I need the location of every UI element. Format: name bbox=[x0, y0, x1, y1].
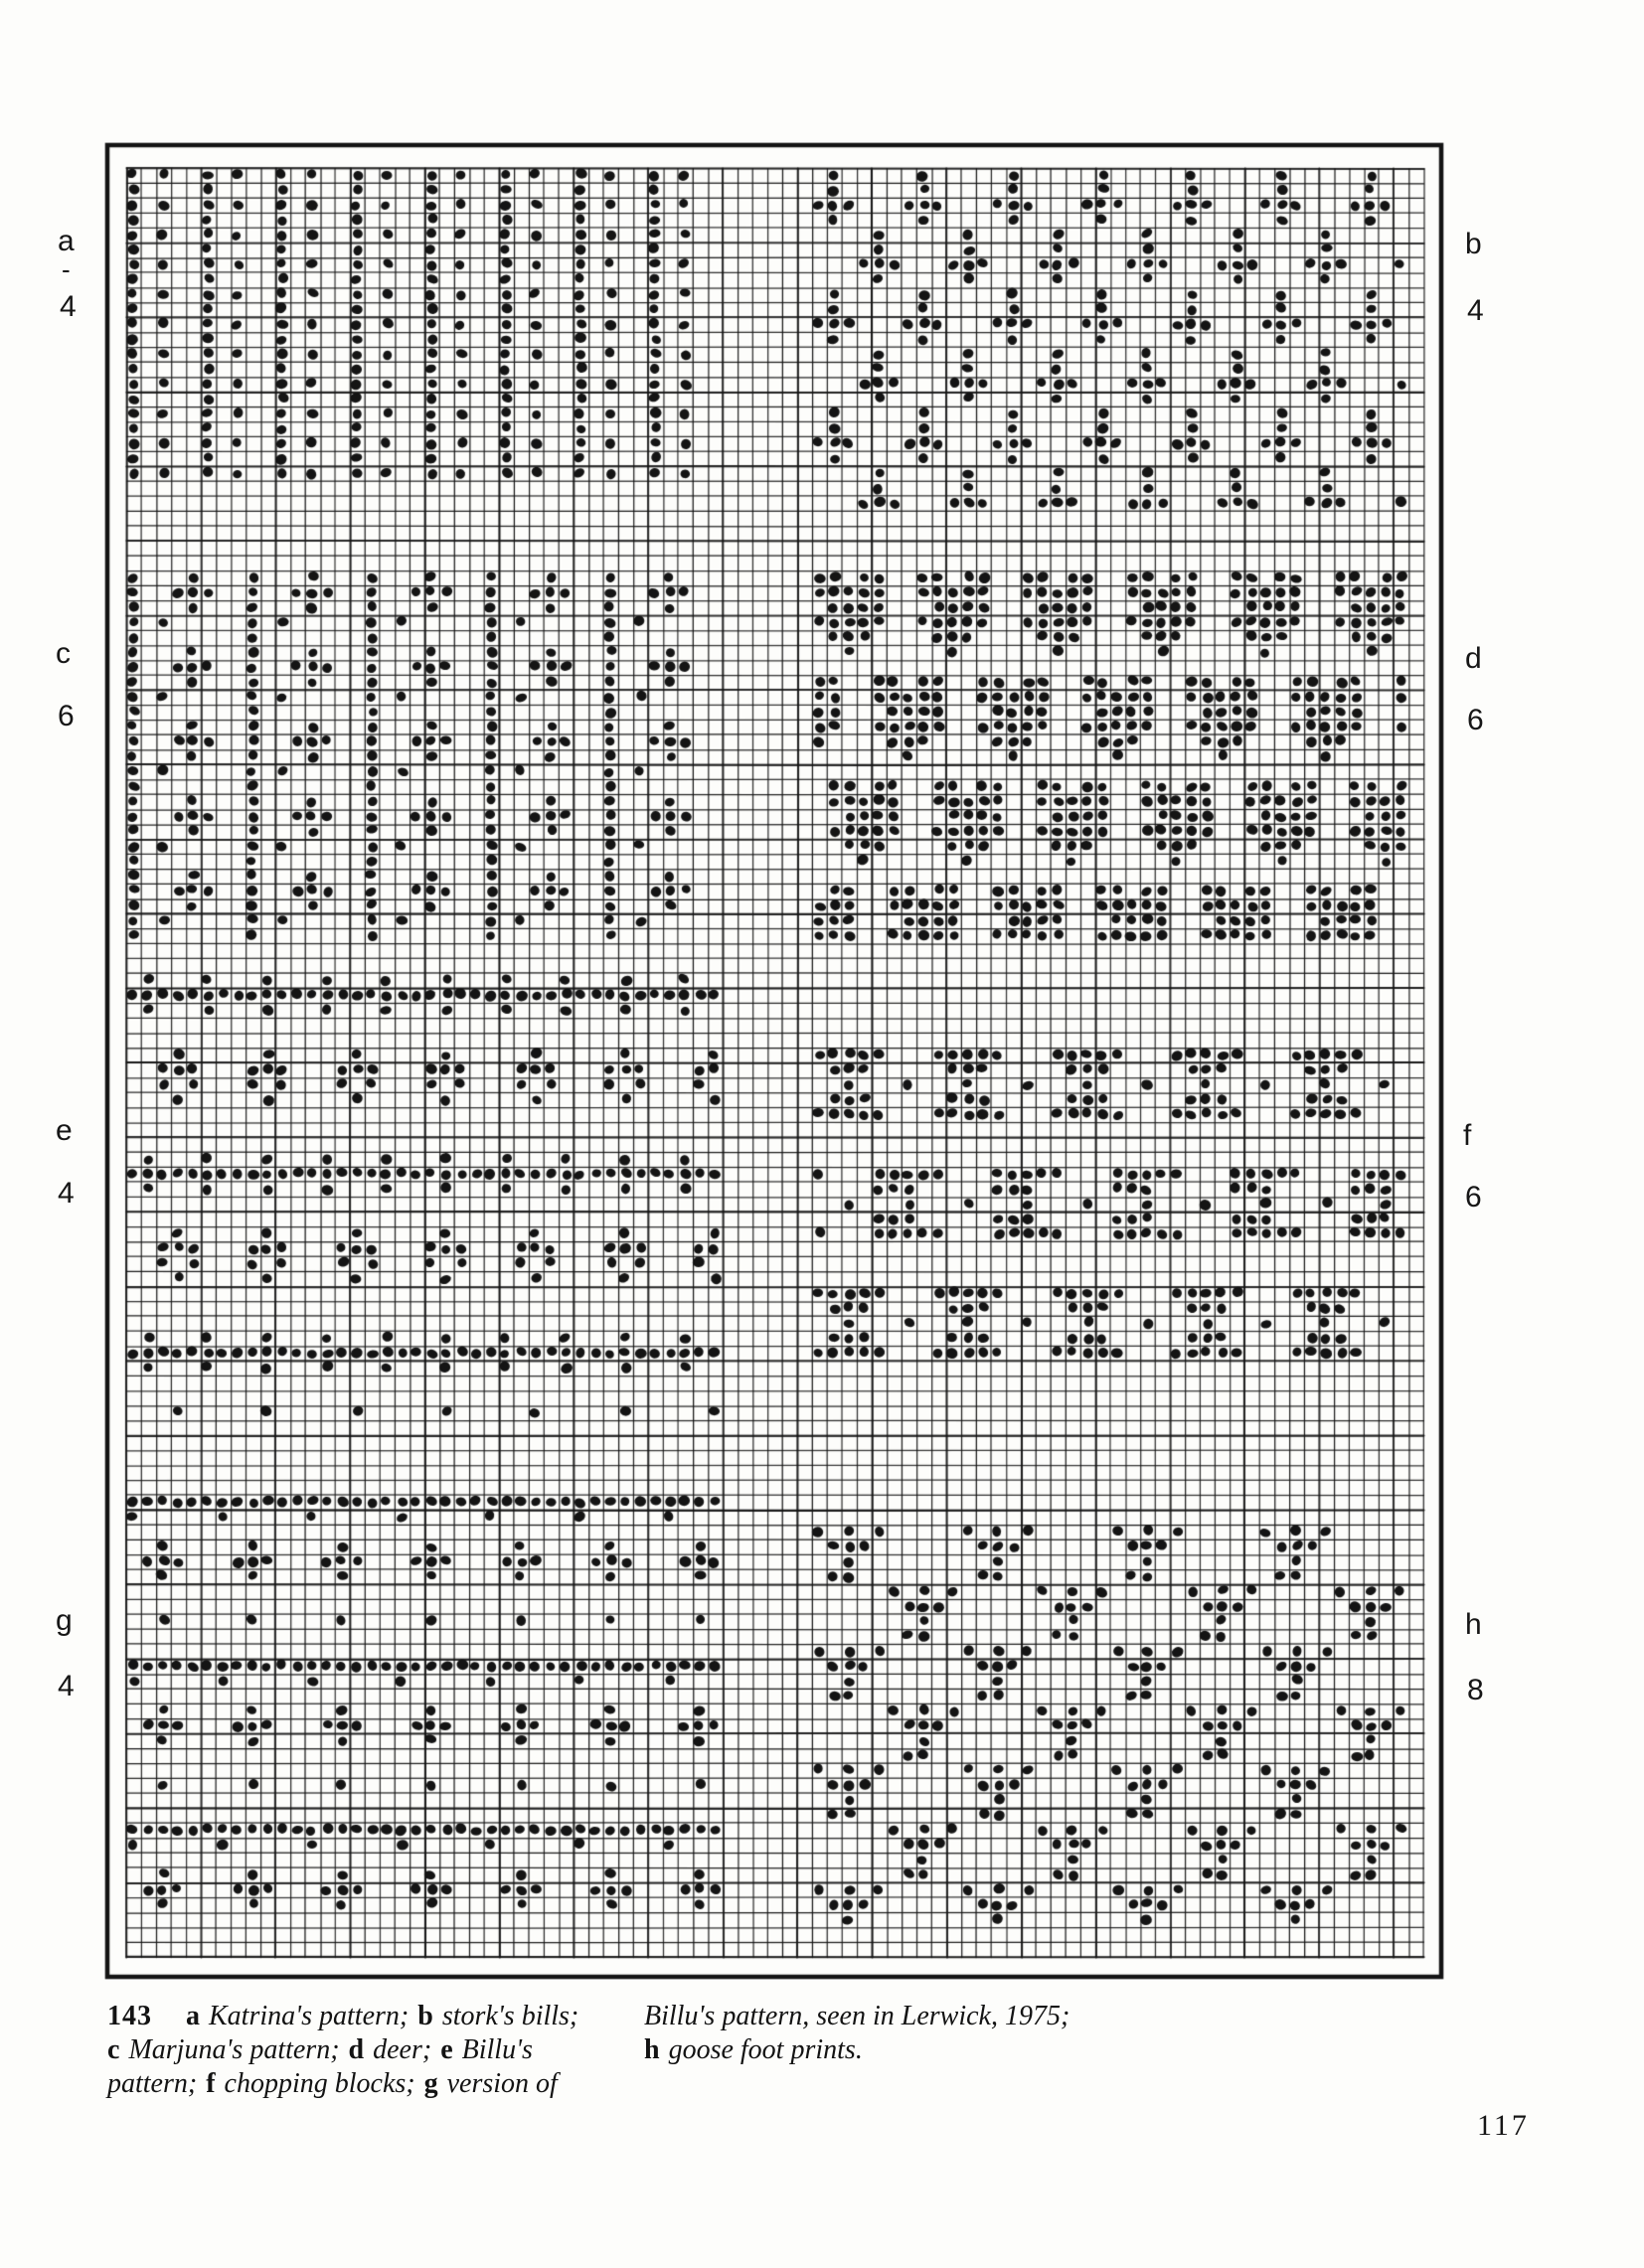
caption-pattern-key: h bbox=[644, 2034, 660, 2065]
caption-line: 143aKatrina's pattern;bstork's bills; bbox=[107, 2000, 634, 2033]
pattern-repeat-count-f: 6 bbox=[1465, 1183, 1482, 1213]
pattern-repeat-count-c: 6 bbox=[58, 702, 75, 731]
caption-pattern-key: f bbox=[206, 2068, 215, 2099]
pattern-label-tick: - bbox=[62, 254, 71, 285]
caption-pattern-name: Marjuna's pattern; bbox=[128, 2034, 339, 2065]
pattern-letter-label-d: d bbox=[1465, 644, 1482, 674]
pattern-letter-label-e: e bbox=[56, 1116, 73, 1146]
caption-line: Billu's pattern, seen in Lerwick, 1975; bbox=[644, 2000, 1201, 2033]
pattern-repeat-count-a: 4 bbox=[60, 292, 77, 322]
figure-caption-right-column: Billu's pattern, seen in Lerwick, 1975;h… bbox=[644, 2000, 1201, 2067]
pattern-repeat-count-g: 4 bbox=[58, 1672, 75, 1701]
caption-pattern-key: g bbox=[424, 2068, 438, 2099]
pattern-repeat-count-e: 4 bbox=[58, 1179, 75, 1209]
caption-pattern-key: d bbox=[349, 2034, 365, 2065]
caption-pattern-name: version of bbox=[447, 2068, 558, 2099]
caption-pattern-key: c bbox=[107, 2034, 119, 2065]
page-number: 117 bbox=[1477, 2109, 1530, 2143]
caption-pattern-key: e bbox=[440, 2034, 452, 2065]
pattern-letter-label-c: c bbox=[56, 639, 71, 669]
caption-line: pattern;fchopping blocks;gversion of bbox=[107, 2067, 634, 2101]
pattern-letter-label-f: f bbox=[1463, 1121, 1471, 1151]
pattern-letter-label-g: g bbox=[56, 1606, 73, 1636]
caption-pattern-name: Billu's pattern, seen in Lerwick, 1975; bbox=[644, 2001, 1069, 2031]
caption-pattern-name: chopping blocks; bbox=[225, 2068, 415, 2099]
caption-line: cMarjuna's pattern;ddeer;eBillu's bbox=[107, 2033, 634, 2067]
knitting-chart-figure bbox=[104, 142, 1444, 1980]
pattern-repeat-count-h: 8 bbox=[1467, 1676, 1484, 1705]
pattern-letter-label-b: b bbox=[1465, 230, 1482, 259]
pattern-repeat-count-d: 6 bbox=[1467, 706, 1484, 735]
figure-caption-left-column: 143aKatrina's pattern;bstork's bills;cMa… bbox=[107, 2000, 634, 2101]
pattern-letter-label-h: h bbox=[1465, 1610, 1482, 1640]
caption-line: hgoose foot prints. bbox=[644, 2033, 1201, 2067]
caption-pattern-name: Katrina's pattern; bbox=[209, 2001, 409, 2031]
caption-pattern-key: b bbox=[417, 2001, 433, 2031]
figure-number: 143 bbox=[107, 2001, 152, 2031]
caption-pattern-name: Billu's bbox=[462, 2034, 533, 2065]
pattern-letter-label-a: a bbox=[58, 227, 75, 256]
caption-pattern-name: goose foot prints. bbox=[669, 2034, 863, 2065]
caption-pattern-name: pattern; bbox=[107, 2068, 197, 2099]
pattern-repeat-count-b: 4 bbox=[1467, 296, 1484, 326]
book-page: { "page": { "number": "117" }, "figure":… bbox=[0, 0, 1644, 2268]
caption-pattern-name: deer; bbox=[373, 2034, 431, 2065]
caption-pattern-key: a bbox=[186, 2001, 200, 2031]
caption-pattern-name: stork's bills; bbox=[442, 2001, 578, 2031]
